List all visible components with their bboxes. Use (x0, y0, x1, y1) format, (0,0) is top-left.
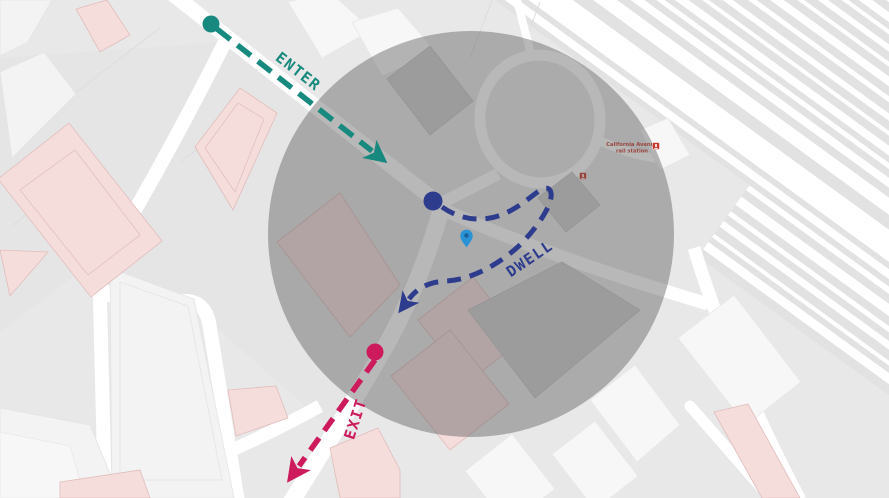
rail-station-icon (653, 143, 660, 150)
dwell-point-dot (424, 192, 443, 211)
map-canvas: California Avenue rail station ENTER DWE… (0, 0, 889, 498)
enter-start-dot (203, 16, 220, 33)
map-visualization: California Avenue rail station ENTER DWE… (0, 0, 889, 498)
exit-start-dot (367, 344, 384, 361)
